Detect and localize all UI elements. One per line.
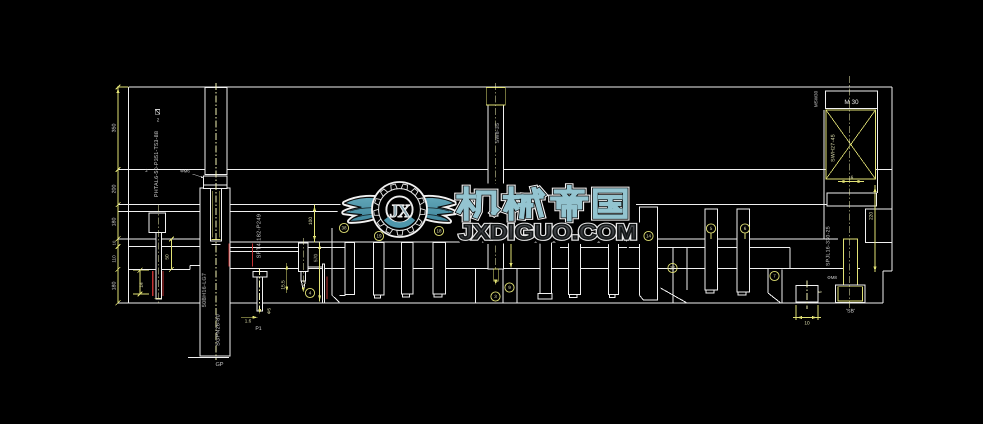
svg-text:14: 14: [139, 282, 145, 288]
svg-text:GP: GP: [215, 362, 223, 368]
svg-text:18: 18: [436, 229, 442, 234]
svg-text:MSW30: MSW30: [814, 90, 819, 107]
svg-text:350: 350: [112, 124, 118, 133]
svg-text:SGPN26-80: SGPN26-80: [216, 314, 222, 346]
svg-text:JX: JX: [389, 202, 411, 222]
svg-text:P1: P1: [255, 326, 261, 332]
svg-text:2: 2: [157, 118, 160, 123]
svg-text:570: 570: [313, 254, 319, 262]
svg-text:Φ5: Φ5: [267, 307, 272, 314]
svg-text:ΦM6: ΦM6: [180, 169, 190, 174]
svg-text:'SB': 'SB': [846, 309, 855, 315]
svg-text:37: 37: [670, 266, 676, 271]
svg-text:ΦM8: ΦM8: [827, 275, 837, 280]
svg-text:SW8-35: SW8-35: [495, 123, 501, 144]
svg-text:10: 10: [112, 240, 117, 245]
svg-text:180: 180: [112, 282, 118, 291]
svg-text:50BH16-LG7: 50BH16-LG7: [202, 273, 208, 307]
svg-text:M 30: M 30: [844, 99, 859, 106]
svg-text:6: 6: [744, 226, 747, 231]
svg-text:3: 3: [494, 294, 497, 299]
svg-text:220: 220: [869, 212, 875, 220]
svg-text:100: 100: [308, 217, 314, 225]
svg-text:14: 14: [646, 234, 652, 239]
svg-text:5: 5: [710, 226, 713, 231]
svg-text:JXDIGUO.COM: JXDIGUO.COM: [459, 221, 637, 244]
svg-text:200: 200: [112, 185, 118, 194]
svg-text:SPJL16-330-25: SPJL16-330-25: [826, 226, 832, 266]
svg-text:7: 7: [773, 274, 776, 279]
svg-text:15.5: 15.5: [281, 280, 287, 290]
svg-text:19: 19: [376, 234, 382, 239]
svg-text:6: 6: [818, 290, 823, 293]
svg-text:SWH27-45: SWH27-45: [831, 134, 837, 162]
svg-text:1.6: 1.6: [245, 319, 252, 324]
svg-text:180: 180: [112, 218, 118, 227]
svg-text:PHTAL6-50-P351-T53-88: PHTAL6-50-P351-T53-88: [154, 131, 160, 197]
svg-text:SPT4-182-P249: SPT4-182-P249: [257, 214, 263, 259]
svg-text:50: 50: [165, 254, 171, 260]
svg-text:10: 10: [804, 321, 810, 327]
svg-text:9: 9: [508, 285, 511, 290]
svg-text:4: 4: [309, 291, 312, 296]
svg-text:38: 38: [341, 226, 347, 231]
svg-text:6: 6: [851, 175, 854, 181]
svg-text:110: 110: [112, 255, 117, 263]
